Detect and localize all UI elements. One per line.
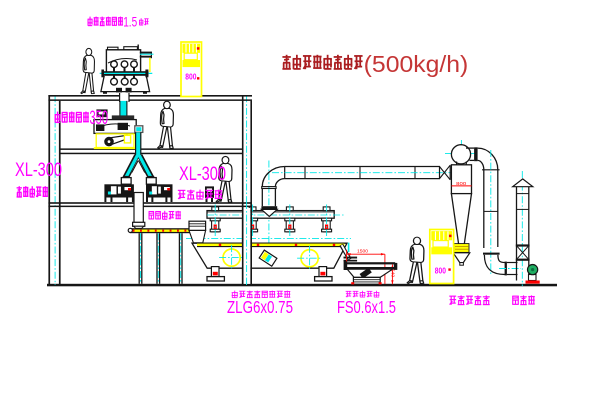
svg-text:XL-300: XL-300 bbox=[179, 163, 226, 185]
svg-text:800: 800 bbox=[185, 72, 196, 82]
svg-text:800: 800 bbox=[435, 266, 446, 276]
svg-text:1.5: 1.5 bbox=[123, 13, 137, 29]
svg-text:FS0.6x1.5: FS0.6x1.5 bbox=[337, 297, 396, 317]
svg-text:350: 350 bbox=[90, 108, 109, 129]
svg-text:XL-300: XL-300 bbox=[15, 159, 62, 181]
svg-text:(500kg/h): (500kg/h) bbox=[364, 51, 469, 77]
svg-text:ZLG6x0.75: ZLG6x0.75 bbox=[227, 297, 293, 317]
svg-text:1500: 1500 bbox=[357, 249, 369, 254]
